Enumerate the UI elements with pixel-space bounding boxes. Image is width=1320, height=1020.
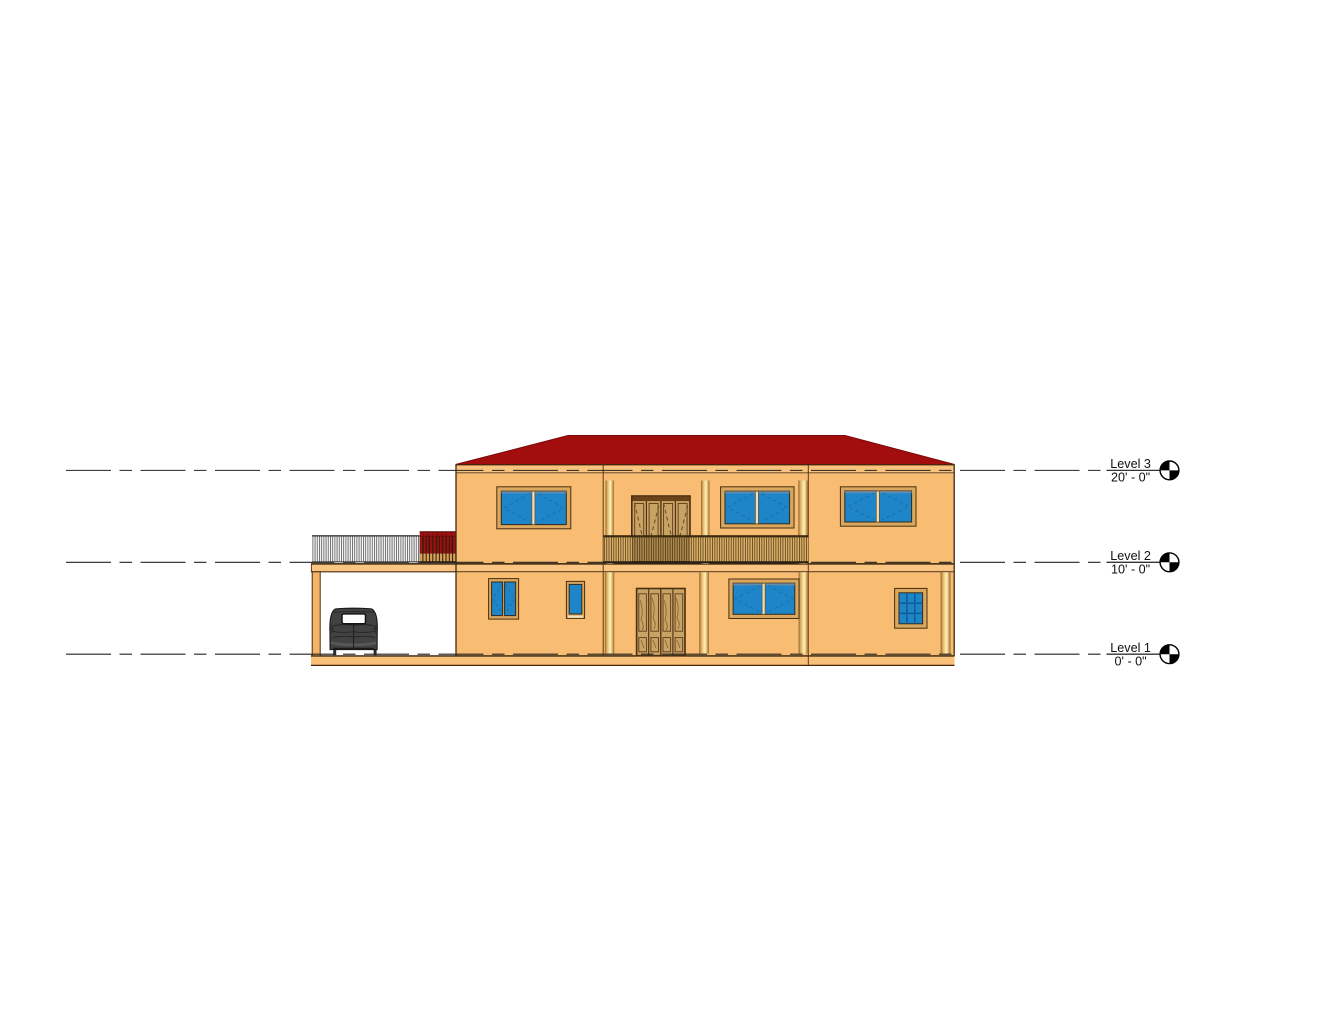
svg-text:0' - 0": 0' - 0" xyxy=(1115,654,1147,668)
svg-text:Level 2: Level 2 xyxy=(1110,549,1151,563)
svg-text:Level 3: Level 3 xyxy=(1110,457,1151,471)
svg-text:Level 1: Level 1 xyxy=(1110,641,1151,655)
svg-text:20' - 0": 20' - 0" xyxy=(1111,471,1150,485)
svg-text:10' - 0": 10' - 0" xyxy=(1111,563,1150,577)
